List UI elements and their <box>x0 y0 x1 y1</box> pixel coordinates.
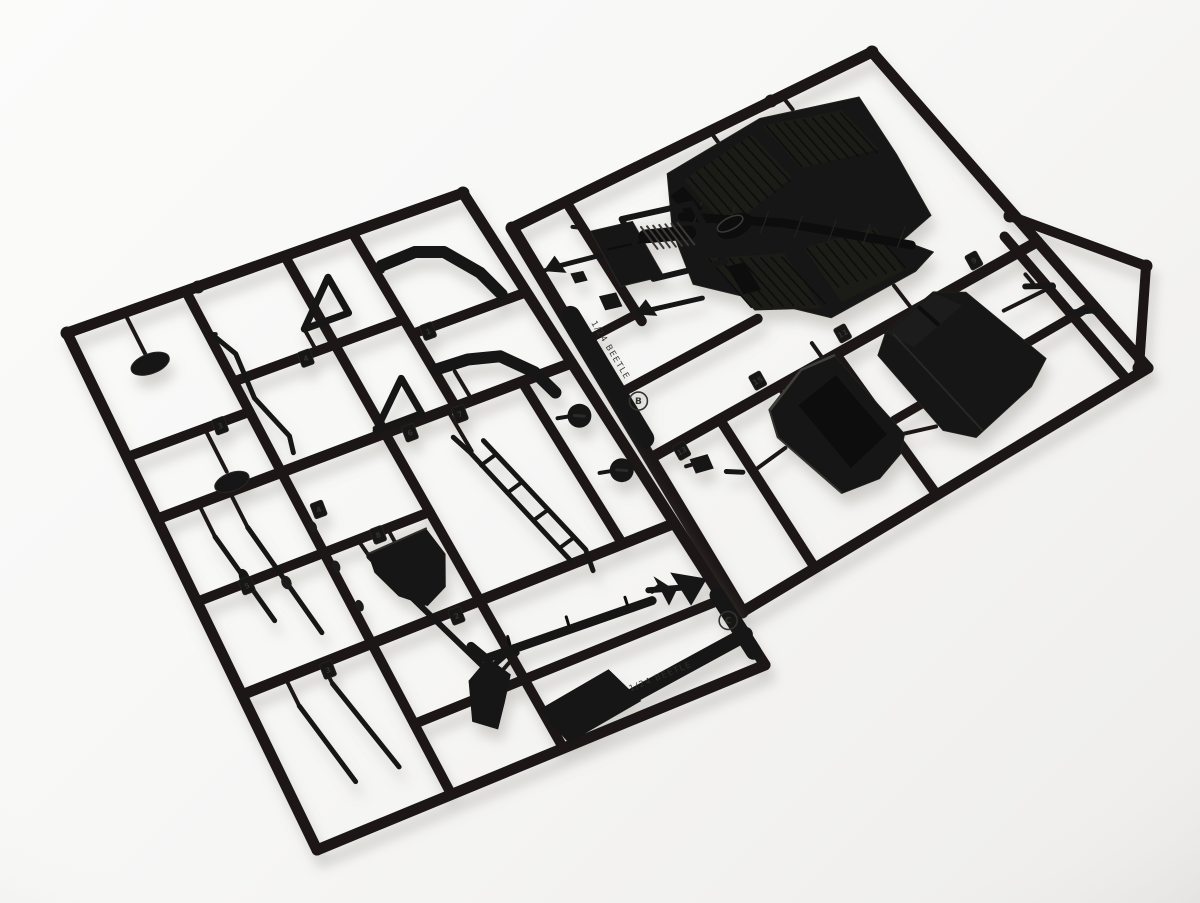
sprue-photo-canvas: 15119131/24 BEETLEB34645827311/24 BEETLE… <box>0 0 1200 903</box>
pin-ball-end <box>1091 307 1099 315</box>
small-clip-part <box>726 471 743 472</box>
sprue-gate-ball <box>1133 362 1146 375</box>
sprue-gate-ball <box>1004 210 1017 223</box>
gate-stem <box>572 227 583 228</box>
hub-slot <box>617 470 627 471</box>
pin-part <box>1025 286 1049 287</box>
pin-ball-end <box>1048 282 1056 290</box>
sprue-gate-ball <box>457 187 470 200</box>
sprue-gate-ball <box>1140 260 1153 273</box>
sill-beam-notches <box>508 637 510 645</box>
sprue-gate-ball <box>866 46 879 59</box>
sprue-gate-ball <box>192 281 205 294</box>
hub-slot <box>574 415 584 416</box>
pin-part <box>1071 310 1093 312</box>
sprue-gate-ball <box>61 327 74 340</box>
photo-model-kit-sprues: 15119131/24 BEETLEB34645827311/24 BEETLE… <box>0 0 1200 903</box>
runner-rail <box>1139 266 1146 368</box>
backdrop <box>0 0 1200 903</box>
runner-letter: B <box>635 397 642 407</box>
sprue-gate-ball <box>765 95 778 108</box>
runner-letter: C <box>725 617 732 627</box>
